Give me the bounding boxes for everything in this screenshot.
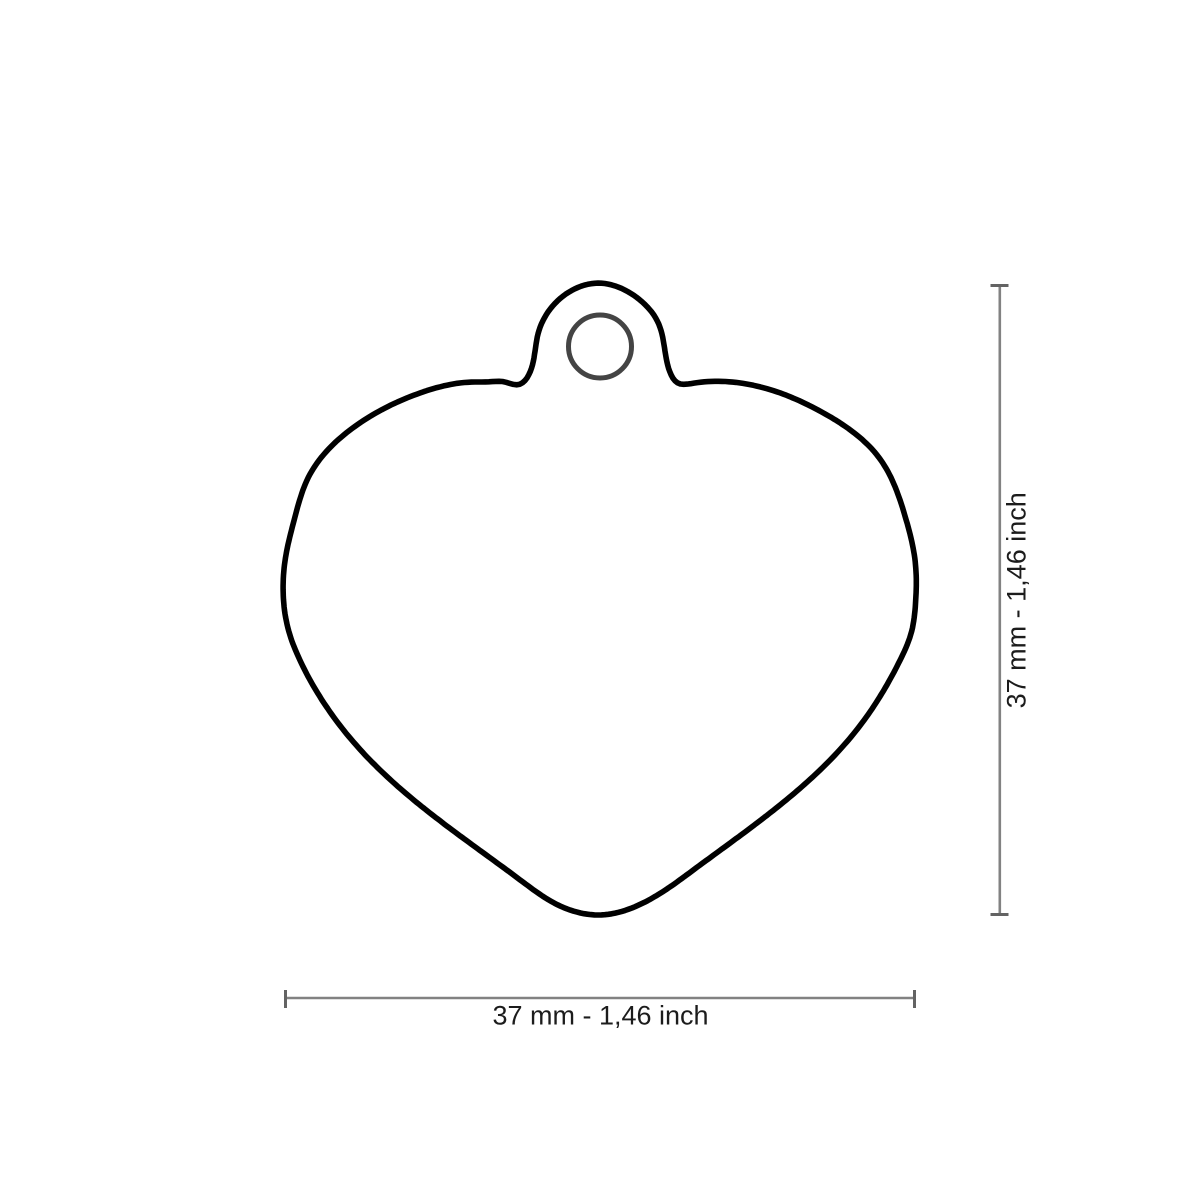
svg-text:37 mm - 1,46 inch: 37 mm - 1,46 inch <box>1002 492 1032 708</box>
svg-text:37 mm - 1,46 inch: 37 mm - 1,46 inch <box>492 1001 708 1031</box>
